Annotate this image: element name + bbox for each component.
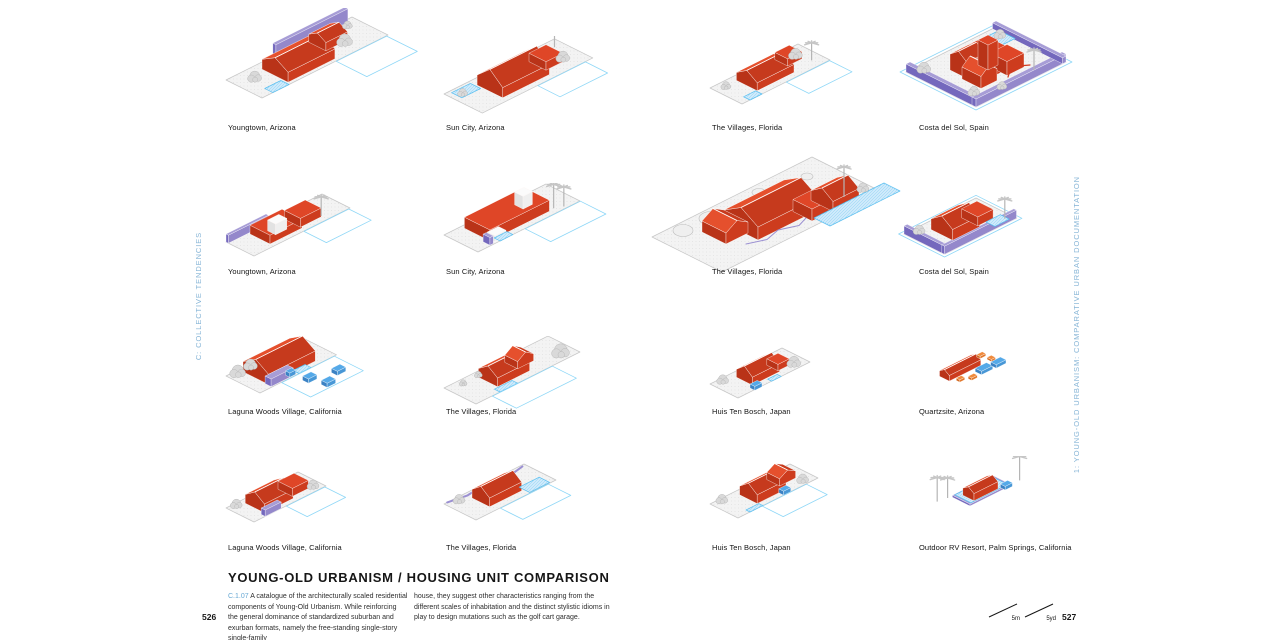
isometric-drawing — [222, 8, 422, 120]
isometric-drawing — [222, 462, 352, 540]
unit-caption: Costa del Sol, Spain — [919, 267, 989, 276]
unit-caption: Huis Ten Bosch, Japan — [712, 543, 791, 552]
isometric-drawing — [925, 348, 1025, 410]
page-number-left: 526 — [202, 612, 216, 622]
housing-unit: Costa del Sol, Spain — [898, 150, 1078, 285]
housing-unit: Sun City, Arizona — [440, 150, 620, 285]
unit-caption: Sun City, Arizona — [446, 267, 505, 276]
unit-caption: Huis Ten Bosch, Japan — [712, 407, 791, 416]
isometric-drawing — [646, 153, 904, 303]
scale-label-metric: 5m — [1012, 616, 1020, 622]
housing-unit: The Villages, Florida — [646, 150, 908, 302]
book-spread: C: COLLECTIVE TENDENCIES 1: YOUNG-OLD UR… — [0, 0, 1280, 640]
housing-unit: Laguna Woods Village, California — [222, 322, 402, 434]
isometric-drawing — [440, 454, 575, 539]
unit-caption: Youngtown, Arizona — [228, 267, 296, 276]
isometric-drawing — [706, 36, 856, 121]
unit-caption: Costa del Sol, Spain — [919, 123, 989, 132]
isometric-drawing — [706, 340, 841, 412]
body-text-column-1: C.1.07 A catalogue of the architecturall… — [228, 592, 408, 640]
page-title: YOUNG-OLD URBANISM / HOUSING UNIT COMPAR… — [228, 570, 610, 585]
unit-caption: Sun City, Arizona — [446, 123, 505, 132]
unit-caption: The Villages, Florida — [446, 543, 516, 552]
unit-caption: Laguna Woods Village, California — [228, 543, 342, 552]
housing-unit: Sun City, Arizona — [440, 8, 620, 140]
housing-unit: Youngtown, Arizona — [222, 8, 434, 140]
housing-unit: Youngtown, Arizona — [222, 150, 402, 285]
unit-caption: Quartzsite, Arizona — [919, 407, 984, 416]
housing-unit: Outdoor RV Resort, Palm Springs, Califor… — [898, 452, 1078, 562]
unit-caption: The Villages, Florida — [446, 407, 516, 416]
isometric-drawing — [222, 192, 372, 274]
housing-unit: The Villages, Florida — [440, 452, 610, 562]
housing-unit: Costa del Sol, Spain — [898, 8, 1083, 140]
page-number-right: 527 — [1062, 612, 1076, 622]
isometric-drawing — [898, 178, 1038, 273]
left-margin-label: C: COLLECTIVE TENDENCIES — [194, 232, 203, 360]
scale-bar-metric: 5m — [986, 600, 1022, 622]
body-text-2: house, they suggest other characteristic… — [414, 593, 610, 621]
unit-caption: The Villages, Florida — [712, 267, 782, 276]
housing-unit: Laguna Woods Village, California — [222, 452, 392, 562]
isometric-drawing — [440, 336, 590, 414]
body-text-1: A catalogue of the architecturally scale… — [228, 593, 407, 640]
unit-caption: The Villages, Florida — [712, 123, 782, 132]
isometric-drawing — [706, 458, 836, 534]
unit-caption: Youngtown, Arizona — [228, 123, 296, 132]
scale-bar-imperial: 5yd — [1022, 600, 1058, 622]
isometric-drawing — [922, 456, 1047, 540]
housing-unit: The Villages, Florida — [706, 8, 866, 140]
unit-caption: Outdoor RV Resort, Palm Springs, Califor… — [919, 543, 1072, 552]
section-code: C.1.07 — [228, 593, 249, 600]
isometric-drawing — [222, 328, 387, 413]
isometric-drawing — [440, 36, 610, 121]
body-text-column-2: house, they suggest other characteristic… — [414, 592, 614, 624]
isometric-drawing — [898, 8, 1080, 126]
unit-caption: Laguna Woods Village, California — [228, 407, 342, 416]
housing-unit: Huis Ten Bosch, Japan — [706, 452, 856, 562]
housing-unit: Quartzsite, Arizona — [898, 322, 1048, 434]
scale-label-imperial: 5yd — [1046, 616, 1056, 622]
housing-unit: Huis Ten Bosch, Japan — [706, 322, 856, 434]
isometric-drawing — [440, 183, 610, 268]
housing-unit: The Villages, Florida — [440, 322, 610, 434]
